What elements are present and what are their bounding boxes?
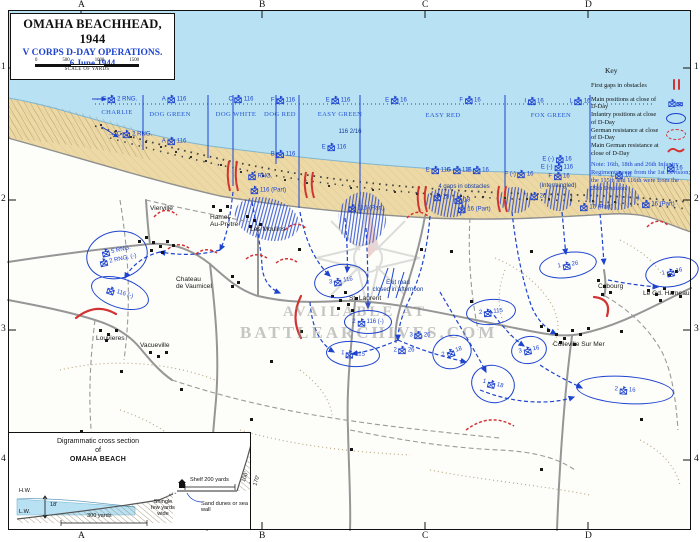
unit-position-oval: 2115 <box>465 297 517 327</box>
grid-col-top: C <box>422 0 428 10</box>
map-title: OMAHA BEACHHEAD, 1944 <box>11 17 174 47</box>
town-label: Vierville <box>150 205 173 212</box>
gap-bars-icon <box>663 77 689 95</box>
map-note: 116 2/16 <box>339 129 362 136</box>
unit-flag: E116 <box>322 143 347 152</box>
unit-flag: 116 (Part) <box>250 186 286 195</box>
scale-caption: SCALE OF YARDS <box>35 67 139 72</box>
town-label: St. Laurent <box>349 295 381 302</box>
unit-flag: 18 <box>454 196 471 205</box>
scale-tick: 1500 <box>129 58 139 63</box>
tide-range-label: 18' <box>50 502 57 508</box>
beach-sector-label: EASY GREEN <box>318 111 363 118</box>
unit-position-oval: 116 (-) <box>87 269 153 316</box>
main-resistance-icon <box>663 146 689 154</box>
scale-tick: 500 <box>62 58 69 63</box>
key-entry-label: German resistance at close of D-Day <box>591 127 663 141</box>
beach-sector-label: DOG GREEN <box>149 111 191 118</box>
town-label: Le Gd. Hameau <box>643 290 690 297</box>
unit-flag: 16 (Part) <box>457 205 490 214</box>
unit-position-oval: 218 <box>428 330 477 375</box>
beach-sector-label: DOG RED <box>264 111 296 118</box>
unit-flag: B116 <box>271 150 296 159</box>
title-box: OMAHA BEACHHEAD, 1944 V CORPS D-DAY OPER… <box>10 13 175 80</box>
grid-row-right: 2 <box>694 194 699 204</box>
unit-flag: F16 <box>459 96 480 105</box>
unit-position-oval: 1115 <box>325 339 381 369</box>
infantry-oval-icon <box>663 113 689 124</box>
scale-tick: 1000 <box>95 58 105 63</box>
shelf-label: Shelf 200 yards <box>190 477 229 483</box>
grid-row-right: 1 <box>694 62 699 72</box>
unit-flag: A116 <box>162 137 187 146</box>
grid-row-right: 3 <box>694 324 699 334</box>
town-label: Cabourg <box>598 283 623 290</box>
scale-bar: 0 500 1000 1500 SCALE OF YARDS <box>35 58 145 72</box>
cross-section-box: Digrammatic cross section of OMAHA BEACH <box>8 432 251 530</box>
map-note: 4 gaps in obstacles <box>438 184 489 191</box>
unit-flag: F (-)16 <box>504 170 533 179</box>
grid-col-top: A <box>78 0 85 10</box>
grid-row-left: 2 <box>1 194 6 204</box>
grid-col-bottom: A <box>78 531 85 541</box>
key-title: Key <box>605 66 693 75</box>
grid-col-bottom: B <box>259 531 265 541</box>
unit-position-oval: 2116 (-) <box>344 310 392 334</box>
shingle-label: Shingle few yards wide <box>151 499 175 517</box>
beach-sector-label: CHARLIE <box>101 109 132 116</box>
unit-flag-icon <box>663 97 689 109</box>
grid-row-left: 4 <box>1 454 6 464</box>
map-note: (Intermingled) <box>539 183 576 190</box>
scale-tick: 0 <box>35 58 37 63</box>
map-page: AVAILABLE AT BATTLEARCHIVES.COM CHARLIED… <box>0 0 700 542</box>
high-water-label: H.W. <box>19 488 31 494</box>
grid-row-left: 1 <box>1 62 6 72</box>
unit-flag: RNG. <box>248 172 273 181</box>
grid-col-bottom: D <box>585 531 592 541</box>
map-key: Key First gaps in obstacles Main positio… <box>591 66 693 193</box>
grid-col-bottom: C <box>422 531 428 541</box>
unit-flag: 18 <box>433 193 450 202</box>
unit-flag: →C2 RNG. <box>93 95 137 104</box>
key-entry-label: Main German resistance at close of D-Day <box>591 142 663 156</box>
beach-sector-label: FOX GREEN <box>531 112 571 119</box>
unit-flag: E16 <box>467 166 489 175</box>
unit-flag: 16 (Part) <box>579 203 612 212</box>
unit-position-oval: 116 <box>643 253 700 292</box>
key-entry-label: Main positions at close of D-Day <box>591 96 663 110</box>
unit-flag: 116 (Part) <box>348 204 384 213</box>
unit-position-oval: 118 <box>467 360 519 408</box>
unit-flag: 26 <box>530 192 547 201</box>
town-label: Chateau de Vaumicel <box>176 276 212 291</box>
unit-flag: E (-)116 <box>541 163 573 172</box>
beach-sector-label: EASY RED <box>425 112 460 119</box>
dunes-label: Sand dunes or sea wall <box>201 501 250 513</box>
grid-col-top: D <box>585 0 592 10</box>
beach-sector-label: DOG WHITE <box>216 111 257 118</box>
unit-flag: 16 (Part) <box>641 200 674 209</box>
low-water-label: L.W. <box>19 509 30 515</box>
unit-flag: E116 <box>326 96 351 105</box>
unit-position-oval: 216 <box>575 373 675 408</box>
grid-col-top: B <box>259 0 265 10</box>
beach-width-label: 300 yards <box>87 513 112 519</box>
key-entry-label: Infantry positions at close of D-Day <box>591 111 663 125</box>
town-label: Vacueville <box>140 342 170 349</box>
key-entry-label: First gaps in obstacles <box>591 82 663 89</box>
grid-row-left: 3 <box>1 324 6 334</box>
unit-flag: F16 <box>548 172 569 181</box>
unit-flag: L16 <box>569 97 590 106</box>
unit-flag: A116 <box>162 95 187 104</box>
key-note: Note: 16th, 18th and 26th Infantry Regim… <box>591 161 691 193</box>
german-resistance-icon <box>663 129 689 140</box>
unit-position-oval: 126 <box>537 248 598 282</box>
unit-flag: 226 <box>393 346 414 355</box>
unit-position-oval: 316 <box>509 333 549 367</box>
unit-flag: 326 <box>409 331 430 340</box>
town-label: Les Moulins <box>250 226 285 233</box>
town-label: Hamel- Au-Pretre <box>210 214 238 229</box>
town-label: Louvieres <box>96 335 125 342</box>
unit-flag: F116 <box>271 96 295 105</box>
unit-flag: E16 <box>385 96 407 105</box>
grid-row-right: 4 <box>694 454 699 464</box>
map-subtitle: V CORPS D-DAY OPERATIONS. <box>11 48 174 58</box>
unit-flag: →C2 RNG. <box>108 130 152 139</box>
map-note: Exit road closed in afternoon <box>373 280 424 293</box>
town-label: Colleville Sur Mer <box>553 341 605 348</box>
unit-flag: C116 <box>229 95 254 104</box>
unit-flag: I16 <box>524 97 543 106</box>
